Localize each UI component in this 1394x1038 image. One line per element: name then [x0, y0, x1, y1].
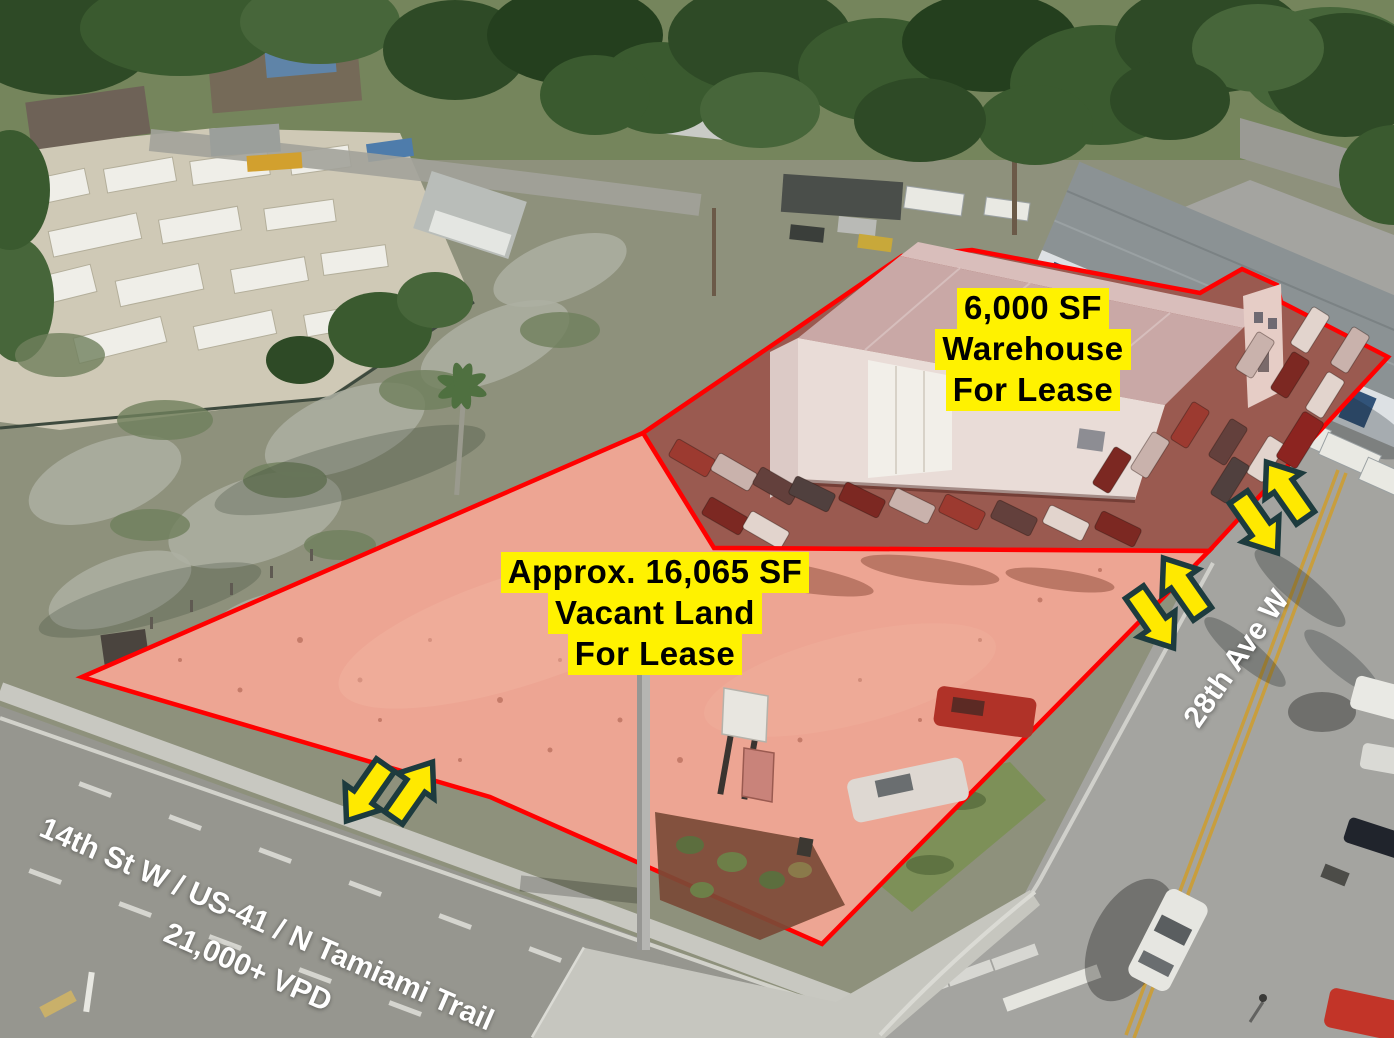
- aerial-photo: 6,000 SF Warehouse For Lease Approx. 16,…: [0, 0, 1394, 1038]
- warehouse-lease-text: For Lease: [946, 370, 1120, 411]
- warehouse-size-text: 6,000 SF: [957, 288, 1109, 329]
- warehouse-label: 6,000 SF Warehouse For Lease: [883, 288, 1183, 411]
- vacant-land-label: Approx. 16,065 SF Vacant Land For Lease: [475, 552, 835, 675]
- warehouse-type-text: Warehouse: [935, 329, 1130, 370]
- pedestrian: [1259, 994, 1267, 1002]
- vacant-lease-text: For Lease: [568, 634, 742, 675]
- vacant-type-text: Vacant Land: [548, 593, 762, 634]
- vacant-size-text: Approx. 16,065 SF: [501, 552, 810, 593]
